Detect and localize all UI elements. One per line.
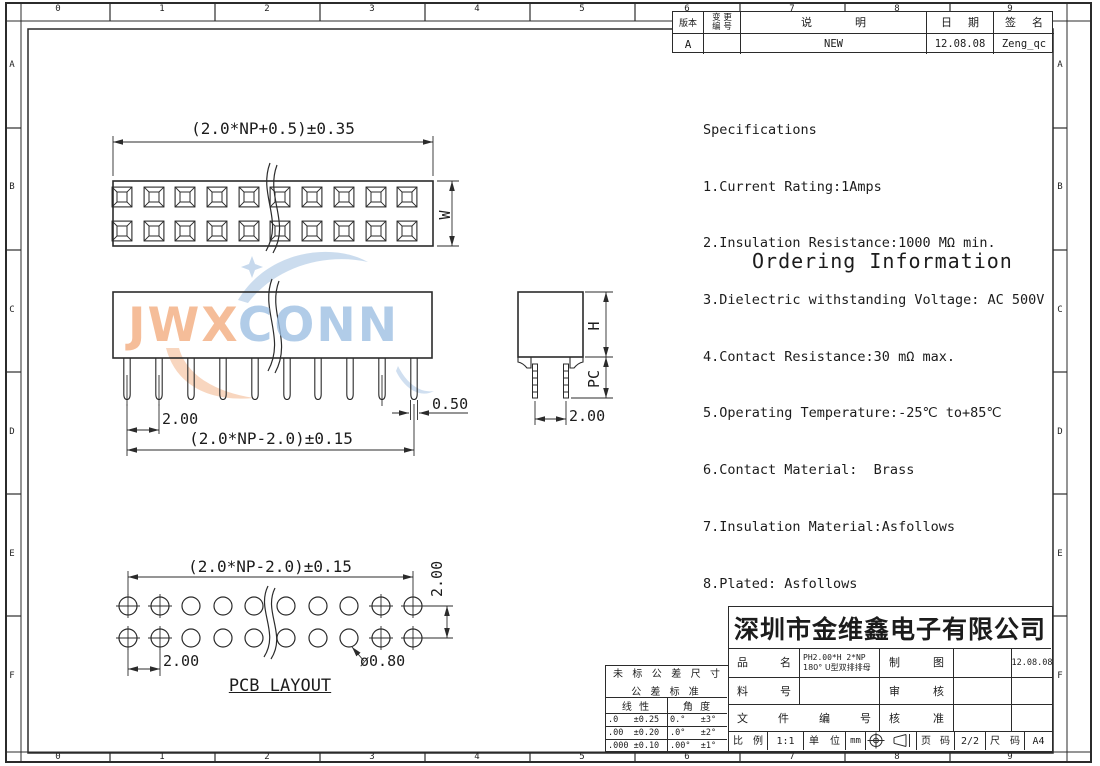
spec-item: 4.Contact Resistance:30 mΩ max.	[703, 348, 1044, 367]
ruler-letter: A	[1053, 60, 1067, 70]
part-no-label: 料 号	[729, 677, 799, 704]
ruler-letter: B	[5, 182, 19, 192]
size-value: A4	[1024, 731, 1052, 750]
top-view	[112, 136, 459, 253]
approve-date	[1011, 704, 1052, 731]
watermark-part1: JWX	[128, 298, 238, 353]
page-value: 2/2	[954, 731, 985, 750]
ruler-number: 3	[362, 752, 382, 762]
revision-desc: NEW	[740, 34, 926, 54]
ruler-letter: D	[5, 427, 19, 437]
ruler-number: 0	[48, 4, 68, 14]
approve-label: 核 准	[879, 704, 953, 731]
dim-side-pitch: 2.00	[569, 407, 605, 425]
ruler-number: 0	[48, 752, 68, 762]
revision-rev: A	[673, 34, 703, 54]
size-label: 尺 码	[985, 731, 1024, 750]
spec-item: 6.Contact Material: Brass	[703, 461, 1044, 480]
check-date	[1011, 677, 1052, 704]
spec-item: 3.Dielectric withstanding Voltage: AC 50…	[703, 291, 1044, 310]
check-value	[953, 677, 1011, 704]
tolerance-row: .0° ±2°	[667, 727, 727, 740]
spec-item: 7.Insulation Material:Asfollows	[703, 518, 1044, 537]
spec-item: 8.Plated: Asfollows	[703, 575, 1044, 594]
dim-front-span: (2.0*NP-2.0)±0.15	[165, 429, 377, 448]
ruler-number: 2	[257, 752, 277, 762]
spec-item: 5.Operating Temperature:-25℃ to+85℃	[703, 404, 1044, 423]
ordering-information-title: Ordering Information	[752, 249, 1013, 273]
ruler-number: 7	[782, 752, 802, 762]
revision-change	[703, 34, 740, 54]
scale-label: 比 例	[729, 731, 767, 750]
ruler-letter: E	[5, 549, 19, 559]
ruler-number: 5	[572, 4, 592, 14]
revision-header-rev: 版本	[673, 12, 703, 34]
tolerance-title-2: 公 差 标 准	[606, 683, 727, 698]
tolerance-row: .00 ±0.20	[606, 727, 667, 740]
watermark-logo: JWXCONN	[128, 298, 399, 353]
tolerance-col-linear: 线 性	[606, 698, 667, 714]
part-name-label: 品 名	[729, 649, 799, 677]
ruler-number: 2	[257, 4, 277, 14]
company-name: 深圳市金维鑫电子有限公司	[729, 607, 1051, 649]
ruler-letter: F	[1053, 671, 1067, 681]
ruler-letter: C	[5, 305, 19, 315]
drawing-sheet: JWXCONN 0 1 2 3 4 5 6 7 8 9 0 1 2 3 4 5 …	[0, 0, 1100, 766]
unit-label: 单 位	[803, 731, 845, 750]
part-no-value	[799, 677, 879, 704]
specifications-title: Specifications	[703, 121, 1044, 140]
ruler-letter: D	[1053, 427, 1067, 437]
ruler-number: 6	[677, 752, 697, 762]
title-block: 深圳市金维鑫电子有限公司 品 名 PH2.00*H 2*NP 180° U型双排…	[728, 606, 1053, 752]
revision-header-date: 日 期	[926, 12, 993, 34]
ruler-number: 4	[467, 4, 487, 14]
revision-header-sign: 签 名	[993, 12, 1054, 34]
tolerance-table: 未 标 公 差 尺 寸 公 差 标 准 线 性 角 度 .0 ±0.25 0.°…	[605, 665, 729, 752]
revision-table: 版本 变 更 编 号 说 明 日 期 签 名 A NEW 12.08.08 Ze…	[672, 11, 1053, 53]
projection-symbol-icon	[866, 732, 914, 749]
dim-pcb-pitch: 2.00	[163, 652, 199, 670]
dim-pcb-span: (2.0*NP-2.0)±0.15	[170, 557, 370, 576]
ruler-number: 4	[467, 752, 487, 762]
draw-value	[953, 649, 1011, 677]
pcb-layout-title: PCB LAYOUT	[213, 676, 347, 696]
dim-side-pc: PC	[585, 363, 603, 395]
dim-side-height: H	[585, 314, 603, 338]
projection-symbol	[865, 731, 916, 750]
tolerance-row: 0.° ±3°	[667, 714, 727, 727]
ruler-letter: C	[1053, 305, 1067, 315]
ruler-number: 1	[152, 4, 172, 14]
ruler-number: 9	[1000, 4, 1020, 14]
side-view	[518, 292, 613, 425]
ruler-letter: F	[5, 671, 19, 681]
spec-item: 1.Current Rating:1Amps	[703, 178, 1044, 197]
tolerance-col-angle: 角 度	[667, 698, 727, 714]
ruler-number: 8	[887, 752, 907, 762]
ruler-letter: B	[1053, 182, 1067, 192]
approve-value	[953, 704, 1011, 731]
dim-front-pitch: 2.00	[162, 410, 198, 428]
ruler-number: 8	[887, 4, 907, 14]
dim-pcb-row-pitch: 2.00	[428, 561, 446, 597]
revision-date: 12.08.08	[926, 34, 993, 54]
ruler-number: 5	[572, 752, 592, 762]
revision-sign: Zeng_qc	[993, 34, 1054, 54]
ruler-letter: A	[5, 60, 19, 70]
revision-header-change: 变 更 编 号	[703, 12, 740, 34]
ruler-number: 6	[677, 4, 697, 14]
watermark-part2: CONN	[238, 298, 399, 353]
check-label: 审 核	[879, 677, 953, 704]
dim-pcb-hole: ø0.80	[360, 652, 405, 670]
revision-header-desc: 说 明	[740, 12, 926, 34]
tolerance-row: .000 ±0.10	[606, 740, 667, 752]
specifications-block: Specifications 1.Current Rating:1Amps 2.…	[703, 83, 1044, 631]
ruler-number: 7	[782, 4, 802, 14]
unit-value: mm	[845, 731, 865, 750]
draw-label: 制 图	[879, 649, 953, 677]
scale-value: 1:1	[767, 731, 803, 750]
dim-front-pin-width: 0.50	[432, 395, 468, 413]
dim-top-view-w: W	[436, 203, 454, 227]
tolerance-title-1: 未 标 公 差 尺 寸	[606, 666, 727, 683]
page-label: 页 码	[916, 731, 954, 750]
ruler-number: 3	[362, 4, 382, 14]
draw-date: 12.08.08	[1011, 649, 1052, 677]
ruler-number: 9	[1000, 752, 1020, 762]
ruler-number: 1	[152, 752, 172, 762]
dim-top-view-width: (2.0*NP+0.5)±0.35	[160, 119, 386, 138]
part-name-value: PH2.00*H 2*NP 180° U型双排排母	[799, 649, 879, 677]
tolerance-row: .0 ±0.25	[606, 714, 667, 727]
ruler-letter: E	[1053, 549, 1067, 559]
doc-no-label: 文 件 编 号	[729, 704, 879, 731]
tolerance-row: .00° ±1°	[667, 740, 727, 752]
